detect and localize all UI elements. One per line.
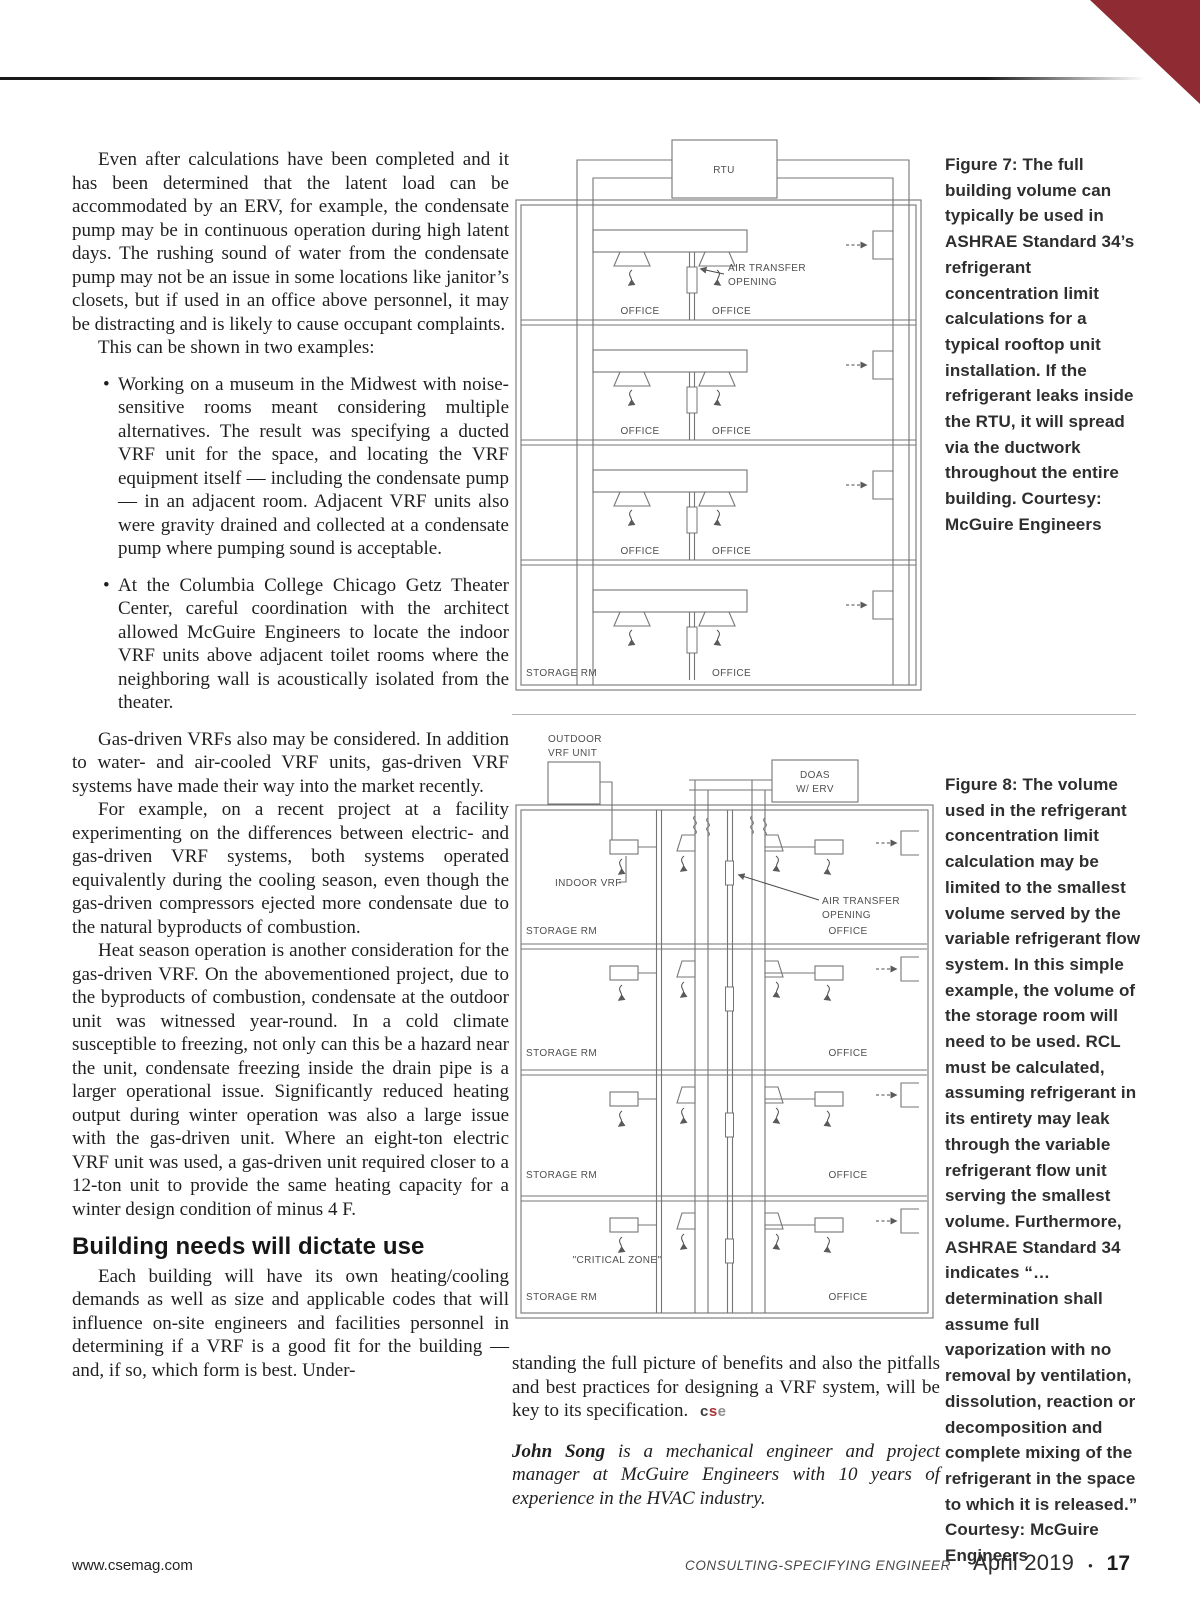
paragraph: standing the full picture of benefits an… xyxy=(512,1352,940,1424)
room-label: OFFICE xyxy=(620,306,659,317)
air-transfer-label: AIR TRANSFER xyxy=(728,263,806,274)
footer-magazine-name: CONSULTING-SPECIFYING ENGINEER xyxy=(685,1558,951,1573)
air-transfer-label: AIR TRANSFER xyxy=(822,896,900,907)
room-label: STORAGE RM xyxy=(526,668,597,679)
svg-text:VRF UNIT: VRF UNIT xyxy=(548,748,597,759)
footer-separator-dot: • xyxy=(1088,1558,1093,1573)
footer-right-group: CONSULTING-SPECIFYING ENGINEER April 201… xyxy=(685,1550,1130,1576)
room-label: OFFICE xyxy=(828,1048,867,1059)
room-label: OFFICE xyxy=(712,306,751,317)
footer-website: www.csemag.com xyxy=(72,1557,193,1574)
room-label: OFFICE xyxy=(712,426,751,437)
page-footer: www.csemag.com CONSULTING-SPECIFYING ENG… xyxy=(72,1550,1130,1576)
room-label: OFFICE xyxy=(828,1292,867,1303)
room-label: OFFICE xyxy=(828,1170,867,1181)
room-label: STORAGE RM xyxy=(526,1048,597,1059)
svg-text:OPENING: OPENING xyxy=(822,910,871,921)
outdoor-vrf-unit-box xyxy=(548,762,600,804)
room-label: OFFICE xyxy=(712,546,751,557)
bullet-item: Working on a museum in the Midwest with … xyxy=(72,373,509,561)
author-bio: John Song is a mechanical engineer and p… xyxy=(512,1440,940,1511)
doas-box xyxy=(772,760,858,802)
room-label: STORAGE RM xyxy=(526,1170,597,1181)
refrigerant-pipe xyxy=(600,782,612,840)
svg-text:W/ ERV: W/ ERV xyxy=(796,784,834,795)
room-label: OFFICE xyxy=(620,426,659,437)
room-label: OFFICE xyxy=(828,926,867,937)
paragraph: For example, on a recent project at a fa… xyxy=(72,798,509,939)
critical-zone-label: "CRITICAL ZONE" xyxy=(573,1255,662,1266)
article-left-column: Even after calculations have been comple… xyxy=(72,148,509,1382)
cse-logo: cse xyxy=(700,1403,727,1420)
author-name: John Song xyxy=(512,1441,605,1462)
figure7-diagram: RTU AIR TRANSFER OPENING OFFICE OFFICE O… xyxy=(512,138,932,698)
magazine-page: Even after calculations have been comple… xyxy=(0,0,1200,1600)
room-label: STORAGE RM xyxy=(526,926,597,937)
svg-text:OPENING: OPENING xyxy=(728,277,777,288)
room-label: STORAGE RM xyxy=(526,1292,597,1303)
figure8-caption: Figure 8: The volume used in the refrige… xyxy=(945,772,1141,1569)
return-duct xyxy=(777,160,909,685)
paragraph: This can be shown in two examples: xyxy=(72,336,509,360)
indoor-vrf-label: INDOOR VRF xyxy=(555,878,622,889)
paragraph: Heat season operation is another conside… xyxy=(72,939,509,1221)
bullet-item: At the Columbia College Chicago Getz The… xyxy=(72,574,509,715)
footer-page-number: 17 xyxy=(1107,1552,1130,1576)
article-middle-column: standing the full picture of benefits an… xyxy=(512,1352,940,1510)
figure-divider xyxy=(512,714,1136,715)
paragraph: Even after calculations have been comple… xyxy=(72,148,509,336)
figure8-diagram: OUTDOOR VRF UNIT DOAS W/ ERV INDOOR VRF … xyxy=(512,718,942,1330)
doas-label: DOAS xyxy=(800,770,830,781)
paragraph: Each building will have its own heating/… xyxy=(72,1265,509,1383)
figure7-caption: Figure 7: The full building volume can t… xyxy=(945,152,1137,538)
header-rule xyxy=(0,77,1145,80)
room-label: OFFICE xyxy=(712,668,751,679)
rtu-label: RTU xyxy=(713,165,735,176)
outdoor-vrf-unit-label: OUTDOOR xyxy=(548,734,602,745)
supply-duct xyxy=(577,160,672,685)
paragraph: Gas-driven VRFs also may be considered. … xyxy=(72,728,509,799)
footer-issue-date: April 2019 xyxy=(973,1550,1074,1576)
corner-triangle-decoration xyxy=(1090,0,1200,104)
section-heading: Building needs will dictate use xyxy=(72,1235,509,1259)
room-label: OFFICE xyxy=(620,546,659,557)
